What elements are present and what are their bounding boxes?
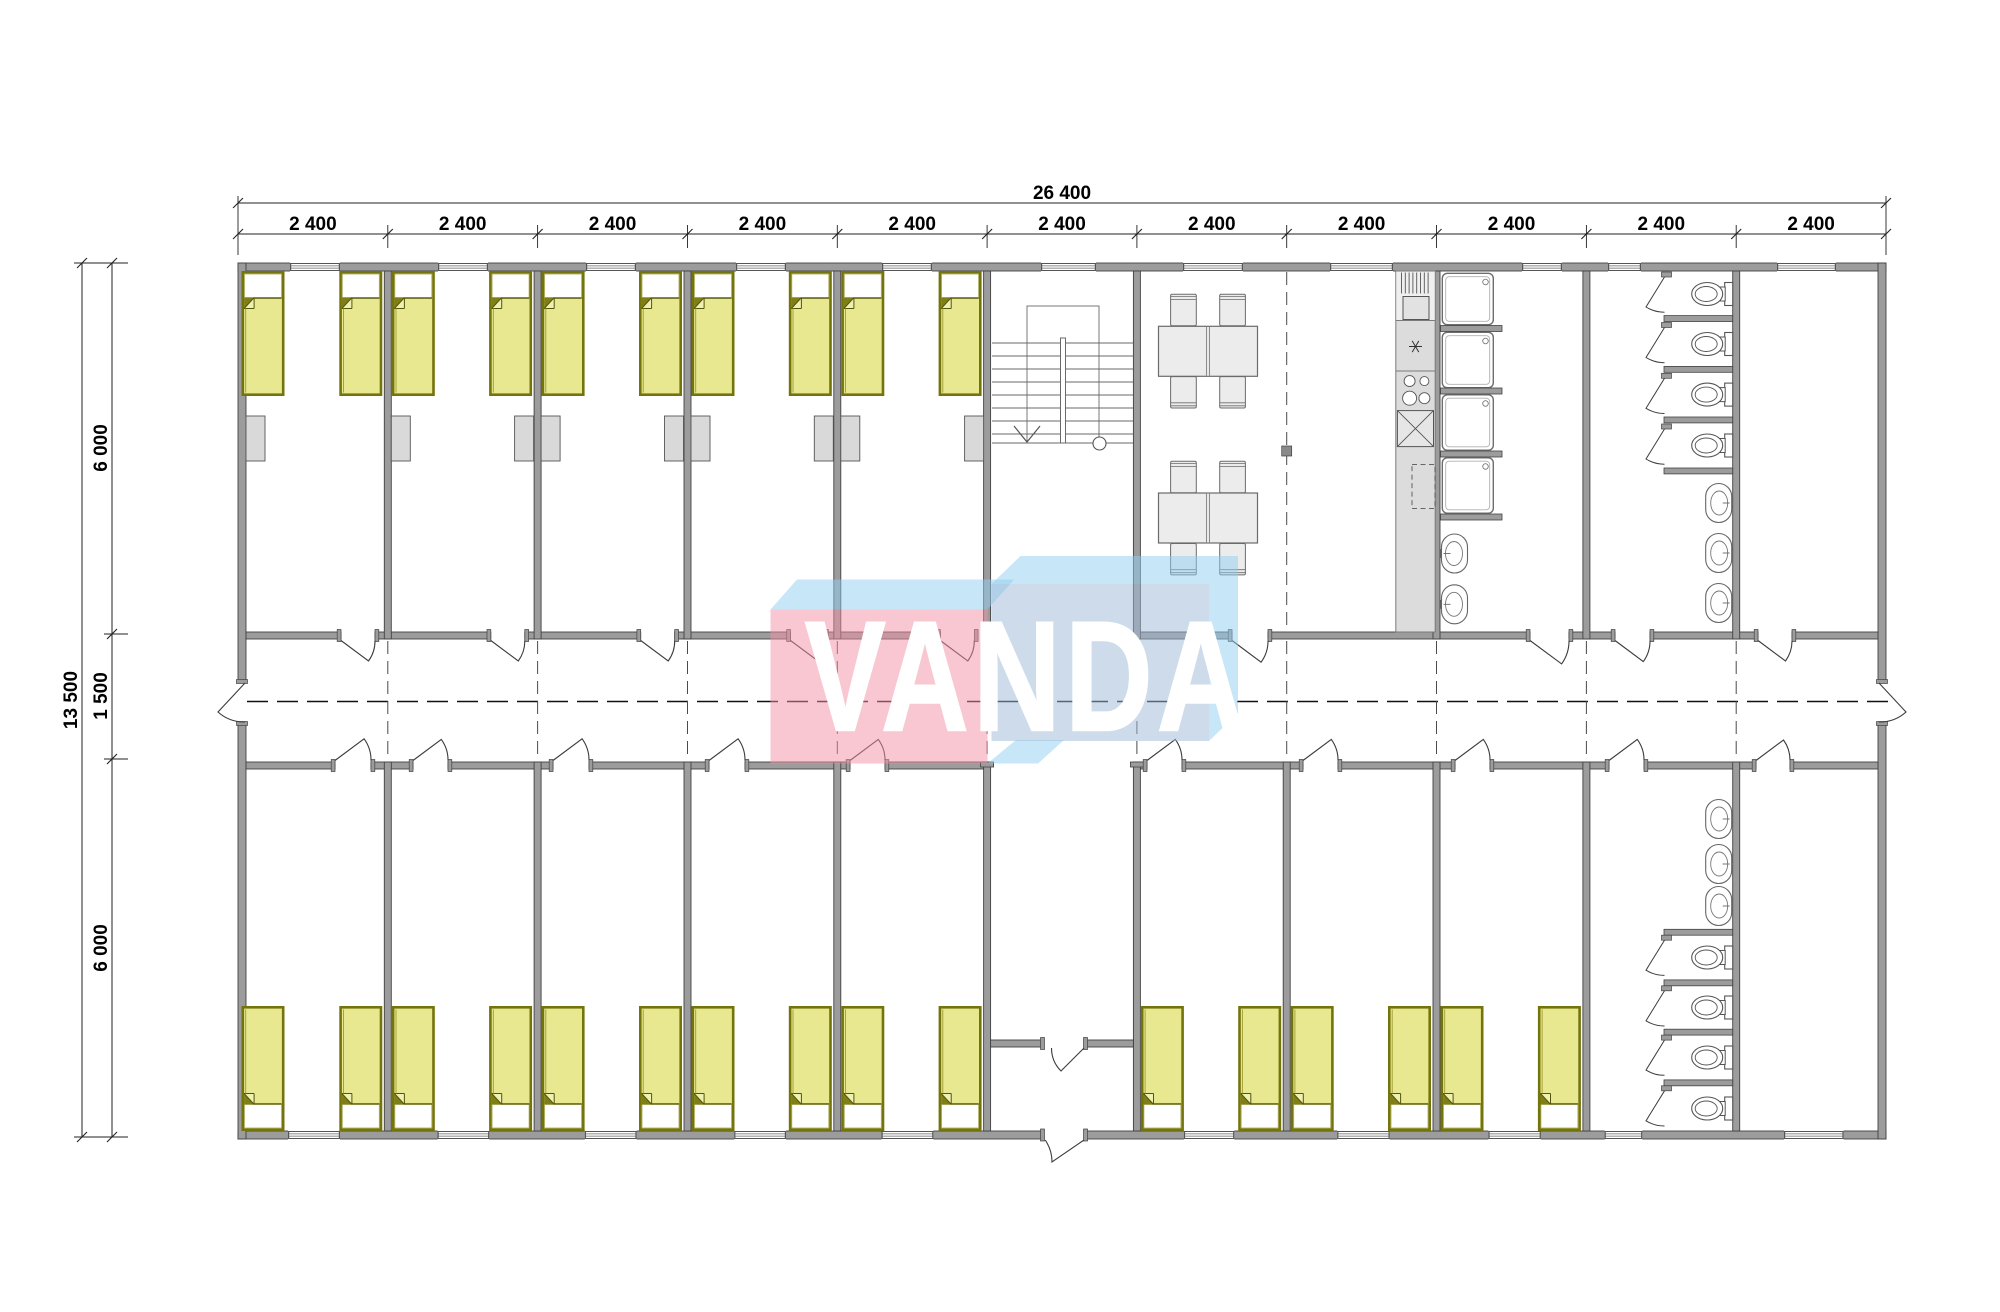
svg-text:13 500: 13 500 — [61, 671, 82, 729]
svg-text:2 400: 2 400 — [289, 214, 337, 235]
svg-text:26 400: 26 400 — [1033, 183, 1091, 204]
svg-text:6 000: 6 000 — [91, 424, 112, 472]
svg-text:2 400: 2 400 — [1787, 214, 1835, 235]
svg-text:2 400: 2 400 — [1038, 214, 1086, 235]
svg-text:2 400: 2 400 — [1338, 214, 1386, 235]
svg-text:1 500: 1 500 — [91, 672, 112, 720]
svg-text:2 400: 2 400 — [1638, 214, 1686, 235]
svg-text:2 400: 2 400 — [888, 214, 936, 235]
svg-text:2 400: 2 400 — [439, 214, 487, 235]
svg-text:6 000: 6 000 — [91, 924, 112, 972]
svg-text:2 400: 2 400 — [1188, 214, 1236, 235]
svg-text:2 400: 2 400 — [1488, 214, 1536, 235]
svg-text:VANDA: VANDA — [805, 589, 1249, 763]
svg-text:2 400: 2 400 — [739, 214, 787, 235]
svg-text:2 400: 2 400 — [589, 214, 637, 235]
